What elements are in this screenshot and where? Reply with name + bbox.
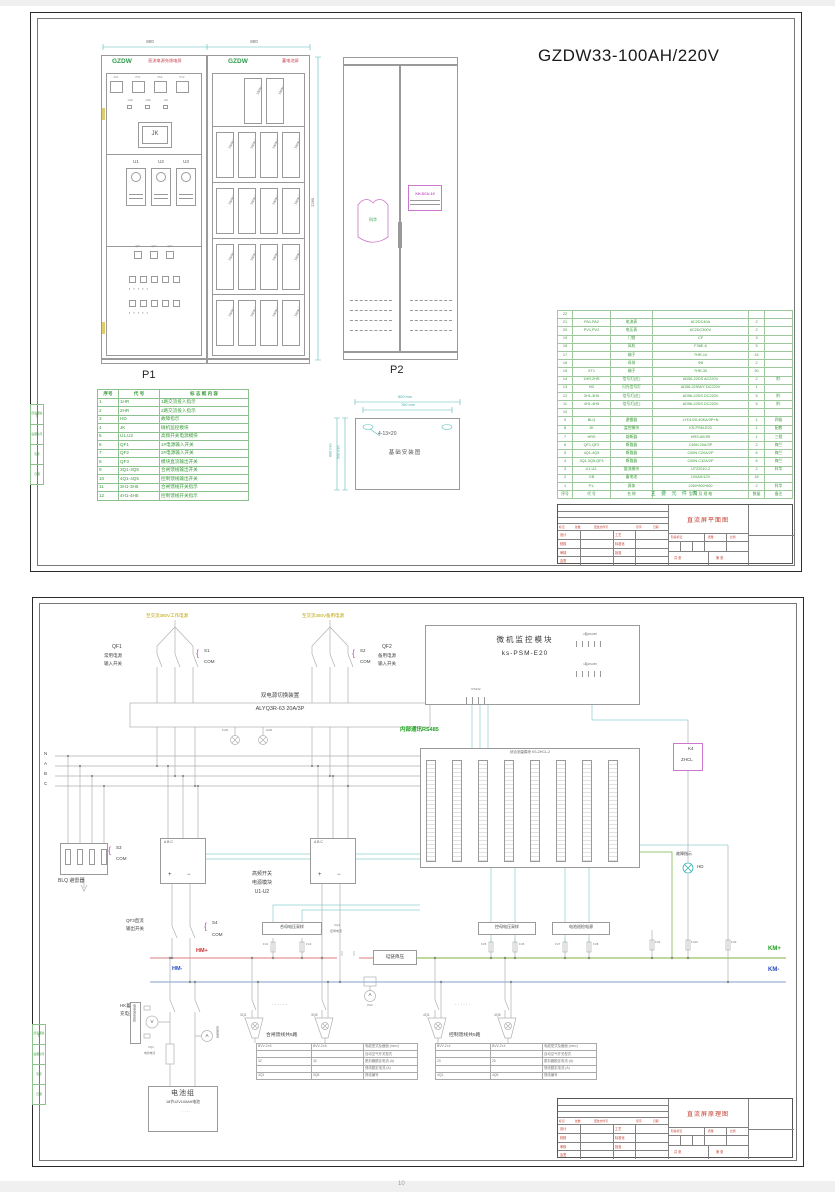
p2-cabinet-top [343,57,458,65]
fu6-label: FU6 [519,943,524,946]
meter-label: PV1 [131,77,145,80]
km-voltage-sample-label: 控母电压采样 [478,925,536,930]
tb-mass: 质量 [708,535,714,539]
fu4-label: FU4 [655,941,660,944]
feeder-lamps-row: ▪▪▪▪▪ [129,312,151,316]
tb-mid: 批准 [615,550,621,555]
hm-minus-label: HM- [172,966,182,972]
tb-col: 签字 [636,1119,642,1123]
monitor-port2-label: 1路RS485 [570,663,610,666]
line [179,198,193,199]
p2-vent-right [410,296,452,336]
terminal-strip [478,760,488,862]
bom-table: 2221PA1,PA2电流表6C2DC40A220PV1,PV2电压表6C2DC… [557,310,793,499]
p2-cabinet-base [343,352,458,360]
k4-name: K4 [688,746,694,751]
table-row: 自动空气开关型式 [257,1051,418,1058]
feeder-breaker [129,300,136,307]
rectifier-u2-box [310,838,356,884]
p2-logo: 科华 [360,218,386,223]
lamp-label: HD [160,100,172,103]
bom-caption: 主 要 元 件 表 [557,492,793,498]
monitor-model: ks-PSM-E20 [425,650,625,657]
tb-no: 第 张 [716,1149,723,1154]
tb-total: 共 张 [674,1149,681,1154]
tb-mass: 质量 [708,1129,714,1133]
table-row: 底图总号 [31,425,44,445]
feeder-breaker [140,276,147,283]
table-row: 6QF1,QF2断路器C65N 20A/3P2梅兰 [558,442,793,450]
qf2-name: QF2 [382,645,392,651]
s2-bracket: { [352,648,355,658]
battery-panel-base [207,358,310,364]
feeder-breaker [173,276,180,283]
tb-scale: 比例 [730,535,736,539]
module-label: U1 [126,159,146,164]
page-number: 10 [398,1181,405,1188]
ac-source-left-label: 至交流380V工作电源 [146,613,188,618]
table-row: 日期 [33,1085,46,1105]
battery-block: 100AH/12V [260,244,278,290]
fu5-label: FU5 [481,943,486,946]
table-row: 馈线额定电流 (A) [257,1065,418,1072]
table-row: 馈线额定电流 (A) [436,1065,597,1072]
line [154,194,168,195]
ammeter-glyph: A [364,992,376,997]
table-row: 底图总号 [33,1045,46,1065]
table-row: 旧底图总号 [31,405,44,425]
feeder1-title: 合闸馈线共5路 [266,1033,297,1039]
feeder2-q-first: 4Q1 [423,1013,430,1017]
table-row: 93Q1-3Q5合闸馈线输出开关 [98,466,249,475]
switch-label: QF3 [163,246,177,249]
meter-label: PV2 [175,77,189,80]
table-row: 3U1,U2,整流模块UT22010-22科华 [558,466,793,474]
feeder-breaker [129,276,136,283]
table-row: 5U1,U2高频开关电源模块 [98,432,249,441]
battery-block: 100AH/12V [282,132,300,178]
battery-block: 100AH/12V [260,300,278,346]
table-row: 7HRS熔断器HRS-60/3R1三相 [558,433,793,441]
tb-stage: 阶段标记 [671,1129,682,1133]
table-row: 113H1-3H5合闸馈线开关指示 [98,483,249,492]
tb-left: 设计 [560,532,566,537]
s1-com-label: COM [204,659,215,664]
table-row: 6QF11#电源输入开关 [98,441,249,450]
u2-plus: + [318,872,322,879]
panel-meter [132,81,145,93]
terminal-ticks [576,641,602,647]
rectifier-label-3: U1-U2 [232,890,292,896]
module-label: U2 [151,159,171,164]
feeder2-q-last: 4Q5 [494,1013,501,1017]
phase-n: N [44,751,47,756]
tb-mid: 工艺 [615,532,621,537]
battery-block: 100AH/12V [282,188,300,234]
panel-meter [110,81,123,93]
table-row: 旧底图总号 [33,1025,46,1045]
qf1-desc1: 常用电源 [104,653,122,658]
fault-indicator-label: 故障指示 [676,852,692,857]
terminal-ticks [576,671,602,677]
battery-block: 100AH/12V [216,188,234,234]
u1-abc-labels: A B C [164,840,173,844]
cq2-name: CQ2 [148,1046,154,1049]
monitor-port1-label: 2路RS485 [570,633,610,636]
table-row: 8JK监控模块KS-PSM-E201配套 [558,425,793,433]
qf1-desc2: 输入开关 [104,661,122,666]
s1-label: S1 [204,648,210,653]
table-row: 19门锁CF3 [558,335,793,343]
u2-abc-labels: A B C [314,840,323,844]
cq1-label: 控母电流 [330,930,342,933]
table-row: 1P1,屏体2260*800*6002科华 [558,482,793,490]
ats-lamp2-label: 2HR [266,729,272,732]
p2-device-label: KH-DCU-19 [408,192,442,196]
lamp-label: 1HR [124,100,136,103]
s4-com-label: COM [212,932,223,937]
qf3-label-2: 输出开关 [126,926,144,931]
s2-com-label: COM [360,659,371,664]
switch-label: QF2 [147,246,161,249]
feeder-breaker [173,300,180,307]
fan-icon [156,172,166,182]
ats-model: ALYQ3R-63 20A/3P [220,706,340,712]
battery-block: 100AH/12V [238,300,256,346]
terminal-strip [530,760,540,862]
table-row: 123H1-3H5信号灯(红)AD56-22DS DC220V5附: [558,392,793,400]
foundation-dim-left-inner: 500 mm [337,445,341,459]
monitor-port3-label: RS232 [458,688,494,691]
feeder-breaker [162,276,169,283]
table-row: 2020脱扣器额定电流 (A) [436,1058,597,1065]
tb-col: 标记 [559,1119,565,1123]
battery-block: 100AH/12V [282,244,300,290]
fu8-label: FU8 [593,943,598,946]
table-row: 22HR2路交流投入指示 [98,407,249,416]
blq-element [101,849,107,865]
module-label: U3 [176,159,196,164]
foundation-dim-left-outer: 800 mm [329,443,333,457]
charge-ammeter-glyph: A [201,1033,213,1038]
line [129,198,143,199]
table-row: 15XT1端子THR-3030 [558,368,793,376]
battery-block: 100AH/12V [216,132,234,178]
fu7-label: FU7 [555,943,560,946]
qf2-desc1: 备用电源 [378,653,396,658]
table-row: 7QF22#电源输入开关 [98,449,249,458]
line [106,154,202,155]
tb-left: 审核 [560,1144,566,1149]
s2-label: S2 [360,648,366,653]
tb-left: 会签 [560,1152,566,1157]
p2-handle [398,222,402,248]
terminal-strip [608,760,618,862]
table-row: 签字 [33,1065,46,1085]
fu9-label: FU9 [731,941,736,944]
table-row: 11HR1路交流投入指示 [98,398,249,407]
foundation-dim-top-outer: 800 mm [385,395,425,399]
blq-element [89,849,95,865]
battery-block: 100AH/12V [266,78,284,124]
silicon-dropper-label: 硅链降压 [373,954,417,959]
battery-group-title: 电池组 [148,1090,218,1098]
tb-col: 更改文件号 [594,1119,608,1123]
tb-stage: 阶段标记 [671,535,682,539]
table-row: 4Q14Q5馈线编号 [436,1072,597,1079]
feeder-breaker [151,300,158,307]
table-row: 3HD故障指示 [98,415,249,424]
ats-lamp1-label: 1HR [222,729,228,732]
table-row: 4JK微机监控模块 [98,424,249,433]
foundation-dim-top-inner: 760 mm [388,403,428,407]
qf2-desc2: 输入开关 [378,661,396,666]
line [212,238,305,239]
feeder-breaker [162,300,169,307]
dc-panel-base [101,358,207,364]
tb-col: 处数 [575,1119,581,1123]
phase-a: A [44,761,47,766]
hinge [102,108,105,120]
qf1-name: QF1 [112,645,122,651]
km-plus-label: KM+ [768,946,781,953]
ac-source-right-label: 至交流380V备用电源 [302,613,344,618]
s4-bracket: { [204,921,207,931]
foundation-caption: 基础安装图 [375,450,435,456]
feeder-breaker [151,276,158,283]
panel-lamp [163,105,168,109]
fu1-label: FU1 [263,943,268,946]
phase-c: C [44,781,47,786]
k4-sub: ZHCL [681,757,693,762]
table-row: 16母排Φ82 [558,360,793,368]
battery-block: 100AH/12V [244,78,262,124]
tb-mid: 批准 [615,1144,621,1149]
p1-label: P1 [142,369,155,382]
km-minus-label: KM- [768,967,779,974]
dc-panel-name: 直流电源充馈电屏 [148,59,182,64]
table-row: 104Q1-4Q5控制馈线输出开关 [98,475,249,484]
panel-lamp [145,105,150,109]
tb-left: 会签 [560,558,566,563]
rectifier-label-1: 高频开关 [232,872,292,878]
tb-col: 签字 [636,525,642,529]
table-row: 21PA1,PA2电流表6C2DC40A2 [558,319,793,327]
tb-total: 共 张 [674,555,681,560]
legend-header-row: 序号 代 号 标 志 框 内 容 [98,390,249,399]
blq-element [65,849,71,865]
feeder-breaker [140,300,147,307]
tb-left: 审核 [560,550,566,555]
terminal-ticks [466,697,490,704]
terminal-strip [504,760,514,862]
s4-label: S4 [212,920,218,925]
p2-vent-left [350,296,392,336]
battery-panel-name: 蓄电池屏 [282,59,299,64]
line [179,194,193,195]
table-row: 20PV1,PV2电压表6C2DC300V2 [558,327,793,335]
u1-minus: − [187,872,191,879]
tb-mid: 工艺 [615,1126,621,1131]
hd-lamp-label: HD [697,864,704,869]
s3-bracket: { [108,845,111,855]
hinge [102,322,105,334]
hm-plus-label: HM+ [196,948,208,954]
feeder2-dots: · · · · · · [455,1002,470,1007]
table-row: 2GB蓄电池100AH/12V18 [558,474,793,482]
battery-block: 100AH/12V [238,244,256,290]
measure-module-title: 综合测量模块 KS-ZHCL-2 [440,750,620,754]
tb-left: 校核 [560,541,566,546]
tb-left: 设计 [560,1126,566,1131]
tb-mid: 标准化 [615,541,625,546]
table-row: 22 [558,311,793,319]
table-row: 3Q13Q5馈线编号 [257,1072,418,1079]
terminal-strip [426,760,436,862]
feeder1-q-first: 3Q1 [240,1013,247,1017]
table-row: 13HD闪光信号灯AD56-22SM/Y DC220V1 [558,384,793,392]
frame-edge-table: 旧底图总号底图总号签字日期 [32,1024,46,1105]
panel-switch [166,251,174,259]
phase-b: B [44,771,47,776]
battery-block: 100AH/12V [238,188,256,234]
blq-label: BLQ 避雷器 [58,879,84,885]
s3-com-label: COM [116,856,127,861]
battery-cells-dots: ···· [182,1110,191,1115]
panel-meter [154,81,167,93]
title-block: 标记 处数 更改文件号 签字 日期 设计 校核 审核 会签 工艺 标准化 批准 … [557,1098,793,1158]
battery-block: 100AH/12V [260,188,278,234]
battery-block: 100AH/12V [216,244,234,290]
battery-voltage-sample-label: 电池电压采样 [132,1004,135,1042]
dc-panel-body [106,73,202,356]
table-row: 签字 [31,445,44,465]
table-row: 3232脱扣器额定电流 (A) [257,1058,418,1065]
fu10-label: FU10 [691,941,698,944]
tb-no: 第 张 [716,555,723,560]
line [212,182,305,183]
foundation-slot-label: 4-13×20 [378,432,397,438]
feeder-lamps-row: ▪▪▪▪▪ [129,288,151,292]
feeder2-table: BVV-2×4BVV-2×4电缆型式及截面 (mm²)自动空气开关型式2020脱… [435,1043,597,1080]
table-row: 17端子THR-1024 [558,351,793,359]
u2-minus: − [337,872,341,879]
tb-mid: 标准化 [615,1135,625,1140]
terminal-strip [556,760,566,862]
switch-label: QF1 [131,246,145,249]
fan-icon [131,172,141,182]
line [212,294,305,295]
u1-plus: + [168,872,172,879]
ats-name: 双电源切换装置 [220,693,340,699]
panel-switch [150,251,158,259]
table-row: BVV-2×4BVV-2×4电缆型式及截面 (mm²) [436,1044,597,1051]
hm-voltage-sample-label: 合母电压采样 [262,925,322,930]
meter-label: PA2 [153,77,167,80]
page-title: GZDW33-100AH/220V [538,46,719,66]
table-row: 18风机F36E-65 [558,343,793,351]
legend-table: 序号 代 号 标 志 框 内 容 11HR1路交流投入指示22HR2路交流投入指… [97,389,249,501]
battery-block: 100AH/12V [216,300,234,346]
fan-icon [181,172,191,182]
meter-label: PA1 [109,77,123,80]
title-block: 标记 处数 更改文件号 签字 日期 设计 校核 审核 会签 工艺 标准化 批准 … [557,504,793,564]
tb-col: 处数 [575,525,581,529]
table-row: 10 [558,409,793,417]
charge-current-label: 充电电流 [215,1026,218,1048]
s1-bracket: { [196,648,199,658]
feeder1-table: BVV-2×6BVV-2×6电缆型式及截面 (mm²)自动空气开关型式3232脱… [256,1043,418,1080]
p2-device-box [408,185,442,211]
battery-group-sub: 18节12V100AH电池 [148,1100,218,1104]
line [129,194,143,195]
tb-col: 日期 [653,525,659,529]
table-row: 日期 [31,465,44,485]
panel-lamp [127,105,132,109]
qf3-label-1: QF3直流 [126,918,144,923]
table-row: 自动空气开关型式 [436,1051,597,1058]
battery-block: 100AH/12V [260,132,278,178]
panel-meter [176,81,189,93]
table-row: 54Q1-4Q5断路器C65N C20A/2P6梅兰 [558,450,793,458]
cq1-name: CQ1 [334,924,340,927]
lamp-label: 2HR [142,100,154,103]
table-row: BVV-2×6BVV-2×6电缆型式及截面 (mm²) [257,1044,418,1051]
line [410,204,440,205]
s3-label: S3 [116,845,122,850]
tb-title: 直流屏原理图 [668,1109,748,1118]
tb-col: 更改文件号 [594,525,608,529]
voltmeter-glyph: V [146,1019,158,1024]
terminal-strip [582,760,592,862]
feeder1-dots: · · · · · · [272,1002,287,1007]
tb-left: 校核 [560,1135,566,1140]
rs485-label: 内部通讯RS485 [400,727,439,733]
line [410,200,440,201]
fu2-label: FU2 [306,943,311,946]
battery-inspect-label: 电池巡检电源 [552,925,610,930]
tb-col: 标记 [559,525,565,529]
blq-element [77,849,83,865]
feeder2-title: 控制馈线共5路 [449,1033,480,1039]
rectifier-u1-box [160,838,206,884]
rectifier-label-2: 电源模块 [232,881,292,887]
panel-switch [134,251,142,259]
cq2-label: 电池电流 [144,1052,155,1055]
table-row: 114H1-4H5信号灯(红)AD56-22DS DC220V5附: [558,401,793,409]
dim-panel1: 800 [140,39,160,44]
terminal-strip [452,760,462,862]
battery-block: 100AH/12V [282,300,300,346]
battery-block: 100AH/12V [238,132,256,178]
table-row: 141HR,2HR信号灯(红)AD56-22DS AC220V2附: [558,376,793,384]
dim-bat-side: 2260 [311,198,316,207]
table-row: 8QF3模块直流输出开关 [98,458,249,467]
table-row: 124H1-4H5控制馈线开关指示 [98,492,249,501]
feeder1-q-last: 3Q5 [311,1013,318,1017]
dim-panel2: 800 [244,39,264,44]
tb-col: 日期 [653,1119,659,1123]
tb-scale: 比例 [730,1129,736,1133]
dc-panel-brand: GZDW [112,58,132,65]
line [154,198,168,199]
line [212,126,305,127]
p2-label: P2 [390,364,403,377]
table-row: 9BLQ避雷器LYD1/20-40KA/3P+N1四极 [558,417,793,425]
pa2-meter-label: PA2 [363,1004,377,1007]
tb-title: 直流屏平面图 [668,515,748,524]
battery-panel-brand: GZDW [228,58,248,65]
